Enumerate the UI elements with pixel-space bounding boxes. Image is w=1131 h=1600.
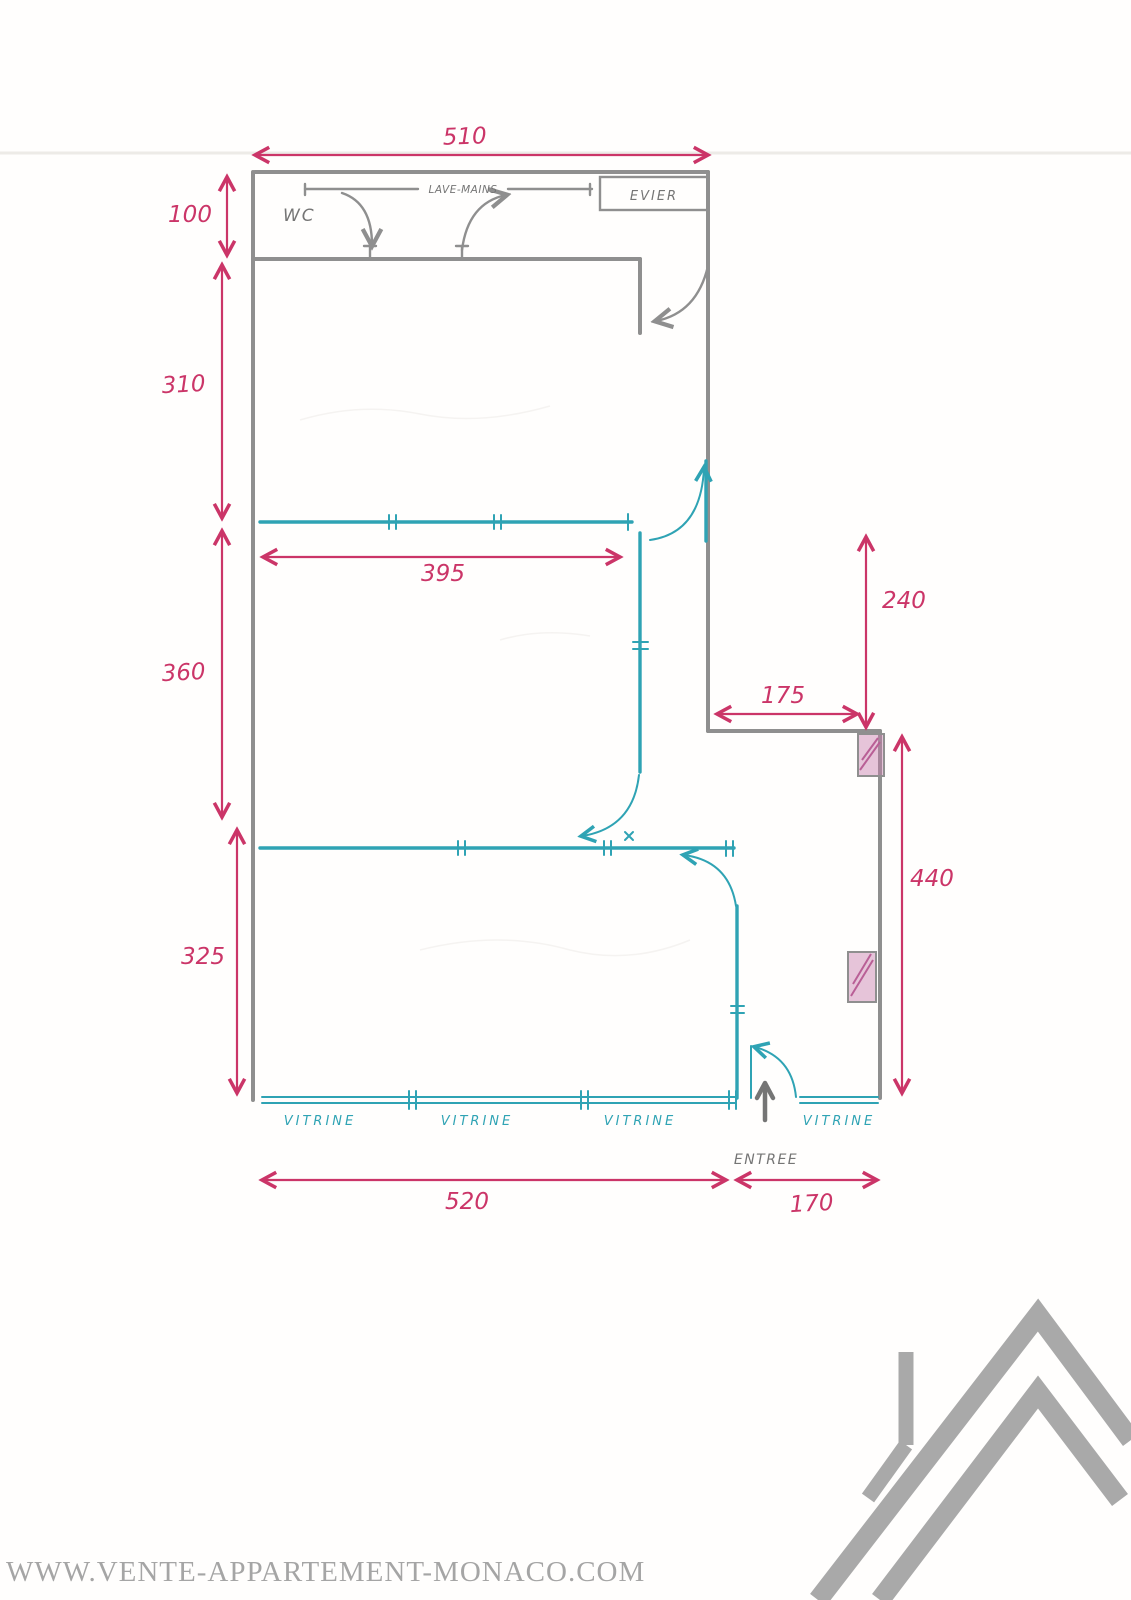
- dim-label-room2-width: 395: [421, 561, 465, 587]
- scanned-floor-plan-page: 510 100 310 360 325 395 240 175 440 520 …: [0, 0, 1131, 1600]
- vitrine-label-2: VITRINE: [441, 1114, 513, 1129]
- pencil-ghost-marks: [300, 406, 690, 956]
- lave-mains-label: LAVE-MAINS: [429, 184, 498, 196]
- outer-walls: [253, 172, 880, 1100]
- dim-label-right-height: 440: [910, 866, 954, 892]
- watermark-url: WWW.VENTE-APPARTEMENT-MONACO.COM: [6, 1556, 645, 1589]
- floor-plan-drawing: 510 100 310 360 325 395 240 175 440 520 …: [0, 0, 1131, 1600]
- dim-label-room3-height: 325: [181, 944, 225, 970]
- wc-label: WC: [283, 206, 316, 226]
- entree-label: ENTREE: [734, 1152, 798, 1168]
- storefront-left: [262, 1097, 736, 1103]
- vitrine-label-4: VITRINE: [803, 1114, 875, 1129]
- dimension-labels: 510 100 310 360 325 395 240 175 440 520 …: [161, 123, 954, 1218]
- door-arc-wc-left: [342, 193, 372, 245]
- entrance-arrow-icon: [757, 1083, 773, 1120]
- dimension-lines: [222, 155, 902, 1180]
- dim-label-recess-height: 240: [882, 588, 926, 614]
- dim-label-front-width: 520: [445, 1189, 489, 1215]
- room-labels: WC LAVE-MAINS EVIER ENTREE VITRINE VITRI…: [283, 184, 875, 1168]
- dim-label-wc-height: 100: [168, 202, 212, 228]
- dim-label-top-width: 510: [442, 123, 487, 151]
- storefront-glazing: [262, 1091, 878, 1109]
- door-arc-1: [650, 468, 704, 540]
- dim-label-entrance-width: 170: [789, 1190, 834, 1218]
- dim-label-room1-height: 310: [161, 371, 206, 399]
- door-arc-3: [684, 855, 736, 906]
- dim-label-recess-width: 175: [761, 683, 805, 709]
- partition-3-x-mark: [625, 832, 633, 840]
- dim-label-room2-height: 360: [161, 659, 206, 687]
- door-arc-corridor: [656, 266, 708, 321]
- door-arc-2: [582, 775, 639, 836]
- house-logo-icon: [818, 1315, 1131, 1600]
- storefront-right: [800, 1097, 878, 1103]
- vitrine-label-3: VITRINE: [604, 1114, 676, 1129]
- vitrine-label-1: VITRINE: [284, 1114, 356, 1129]
- evier-label: EVIER: [630, 189, 678, 204]
- storefront-mullions: [409, 1091, 736, 1109]
- door-arc-wc-right: [462, 195, 506, 250]
